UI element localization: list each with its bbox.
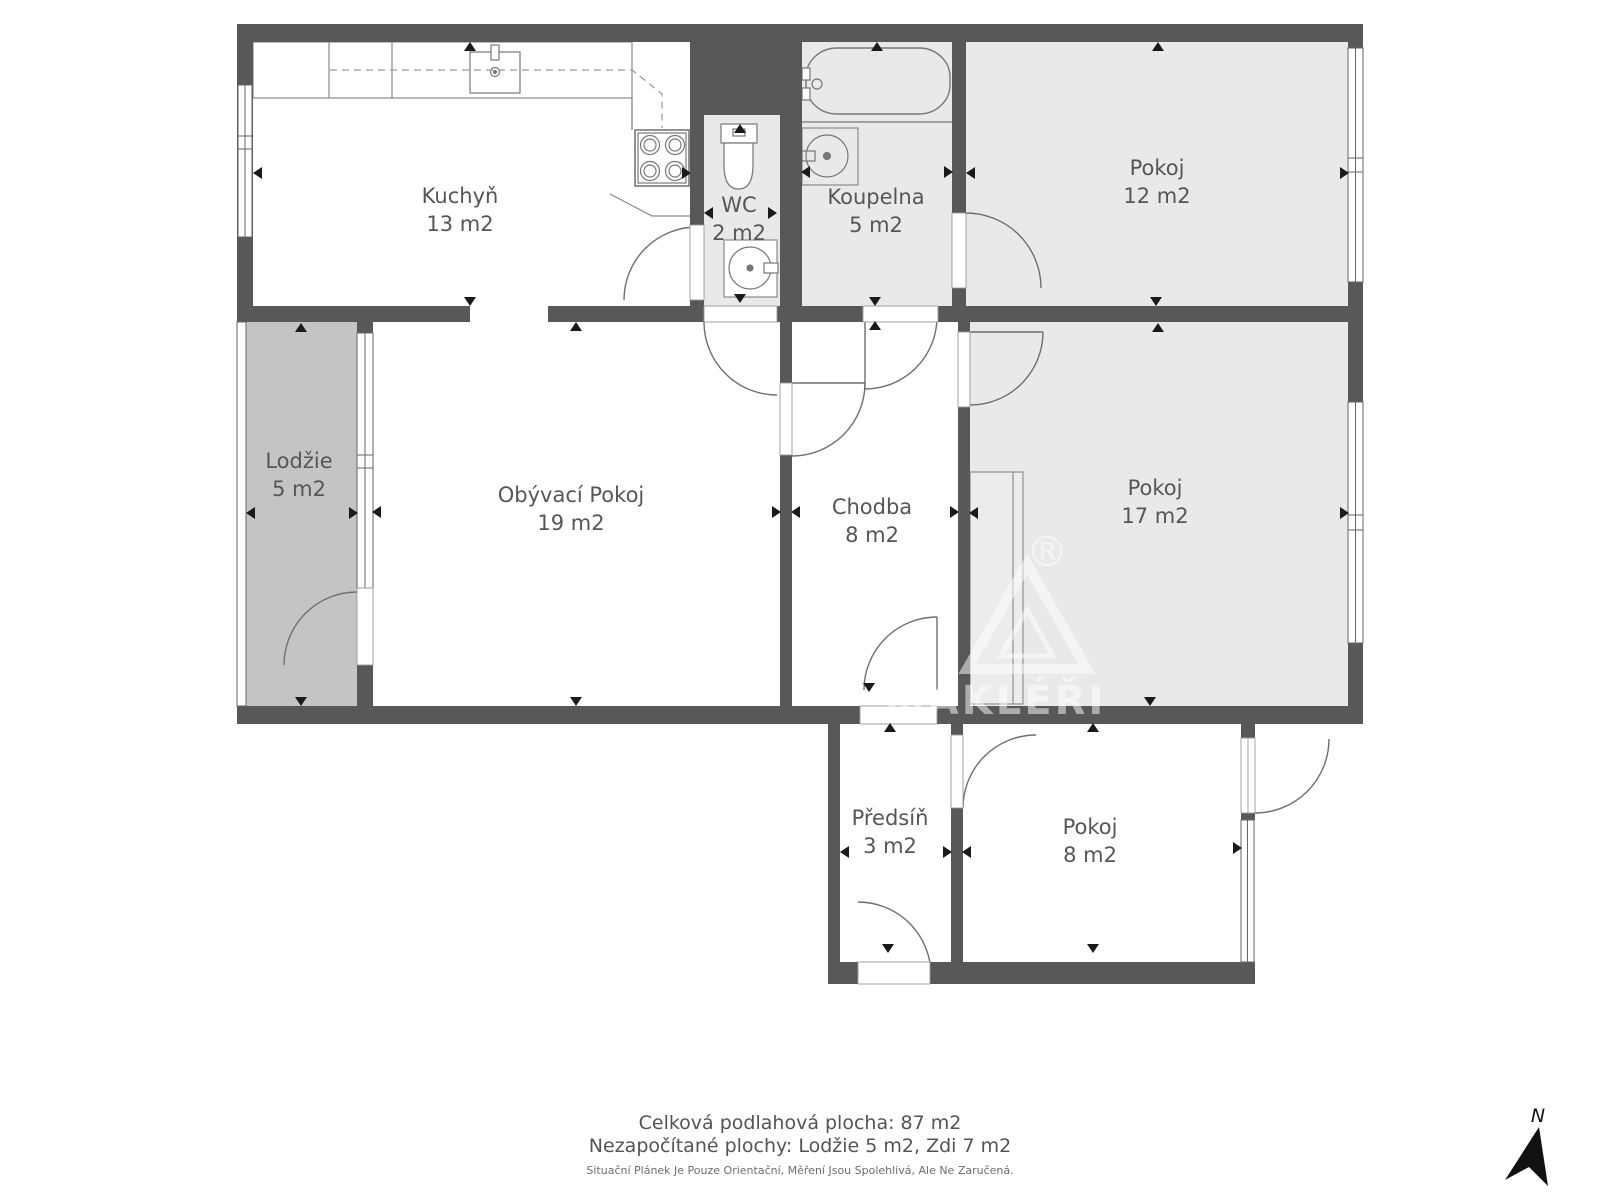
room-lodzie: Lodžie 5 m2 bbox=[265, 447, 332, 503]
door-arc-pokoj-8-balcony bbox=[1255, 739, 1329, 813]
wall-predsin-left bbox=[828, 724, 840, 962]
room-name: Předsíň bbox=[852, 804, 929, 832]
room-pokoj-8: Pokoj 8 m2 bbox=[1063, 813, 1118, 869]
room-area: 8 m2 bbox=[832, 521, 912, 549]
wall-koupelna-pokoj12-a bbox=[952, 42, 966, 213]
kitchen-sink bbox=[470, 45, 520, 93]
wall-lower-a bbox=[237, 706, 860, 724]
window-kuchyn bbox=[238, 85, 252, 237]
plan-summary: Celková podlahová plocha: 87 m2 Nezapočí… bbox=[0, 1112, 1600, 1179]
room-chodba: Chodba 8 m2 bbox=[832, 493, 912, 549]
room-name: Pokoj bbox=[1123, 154, 1190, 182]
room-name: Lodžie bbox=[265, 447, 332, 475]
room-name: Kuchyň bbox=[422, 182, 499, 210]
wall-koupelna-pokoj12-b bbox=[952, 288, 966, 306]
wall-mid-a bbox=[237, 306, 470, 322]
door-leaf-pokoj-12 bbox=[952, 213, 966, 288]
room-kuchyn: Kuchyň 13 m2 bbox=[422, 182, 499, 238]
toilet bbox=[721, 124, 757, 189]
room-name: Pokoj bbox=[1063, 813, 1118, 841]
wall-wc-koupelna bbox=[780, 24, 802, 306]
wall-chodba-pokoj17-a bbox=[958, 322, 970, 332]
room-name: Pokoj bbox=[1121, 474, 1188, 502]
room-obyvaci-pokoj: Obývací Pokoj 19 m2 bbox=[498, 481, 645, 537]
watermark-text: MAKLÉŘI bbox=[885, 676, 1106, 724]
floor-lodzie bbox=[246, 322, 357, 706]
stove bbox=[635, 130, 689, 186]
door-leaf-kuchyn bbox=[690, 225, 704, 300]
room-area: 5 m2 bbox=[827, 211, 924, 239]
door-leaf-entrance bbox=[858, 962, 930, 984]
window-pokoj-17 bbox=[1348, 402, 1363, 643]
watermark-registered-symbol: ® bbox=[1026, 527, 1068, 576]
floor-koupelna bbox=[802, 42, 952, 306]
room-area: 8 m2 bbox=[1063, 841, 1118, 869]
wc-washbasin bbox=[724, 240, 778, 297]
room-area: 17 m2 bbox=[1121, 502, 1188, 530]
wall-pokoj8-right-a bbox=[1241, 724, 1255, 738]
room-area: 5 m2 bbox=[265, 475, 332, 503]
wall-mid-d bbox=[938, 306, 1363, 322]
door-leaf-chodba-pokoj-17 bbox=[958, 332, 970, 407]
wall-pokoj8-right-b bbox=[1241, 813, 1255, 820]
door-leaf-koupelna bbox=[863, 306, 938, 322]
room-pokoj-17: Pokoj 17 m2 bbox=[1121, 474, 1188, 530]
room-koupelna: Koupelna 5 m2 bbox=[827, 183, 924, 239]
room-pokoj-12: Pokoj 12 m2 bbox=[1123, 154, 1190, 210]
door-opening-lodzie bbox=[357, 588, 373, 665]
wall-mid-b bbox=[548, 306, 704, 322]
room-area: 19 m2 bbox=[498, 509, 645, 537]
wall-predsin-pokoj8-a bbox=[951, 724, 963, 735]
wall-bottom-b bbox=[930, 962, 1255, 984]
wall-block-wc bbox=[690, 24, 795, 115]
disclaimer: Situační Plánek Je Pouze Orientační, Měř… bbox=[0, 1163, 1600, 1179]
wall-obyvaci-chodba-b bbox=[780, 455, 792, 706]
room-area: 12 m2 bbox=[1123, 182, 1190, 210]
floorplan-page: ® MAKLÉŘI N Kuchyň 13 m2 WC 2 m2 Koupeln… bbox=[0, 0, 1600, 1200]
window-lodzie bbox=[357, 333, 373, 588]
door-leaf-predsin-pokoj-8 bbox=[951, 735, 963, 808]
wall-kuchyn-wc bbox=[690, 115, 704, 225]
room-name: WC bbox=[712, 191, 766, 219]
room-area: 3 m2 bbox=[852, 832, 929, 860]
floor-plan-drawing: ® MAKLÉŘI N bbox=[0, 0, 1600, 1200]
wall-lodzie-stub-top bbox=[357, 322, 373, 333]
wall-right-outer-b bbox=[1348, 282, 1363, 402]
wall-right-outer-c bbox=[1348, 643, 1363, 706]
door-leaf-obyvaci-chodba bbox=[780, 383, 792, 455]
room-predsin: Předsíň 3 m2 bbox=[852, 804, 929, 860]
excluded-areas: Nezapočítané plochy: Lodžie 5 m2, Zdi 7 … bbox=[0, 1135, 1600, 1158]
window-pokoj-12 bbox=[1348, 48, 1363, 282]
window-pokoj-8 bbox=[1241, 820, 1254, 962]
wall-mid-c bbox=[777, 306, 863, 322]
wall-right-outer-a bbox=[1348, 24, 1363, 48]
room-area: 13 m2 bbox=[422, 210, 499, 238]
total-floor-area: Celková podlahová plocha: 87 m2 bbox=[0, 1112, 1600, 1135]
lodzie-railing bbox=[237, 322, 246, 706]
door-leaf-pokoj-8-balcony bbox=[1241, 738, 1255, 813]
door-leaf-wc bbox=[704, 306, 777, 322]
room-area: 2 m2 bbox=[712, 219, 766, 247]
room-wc: WC 2 m2 bbox=[712, 191, 766, 247]
room-name: Obývací Pokoj bbox=[498, 481, 645, 509]
wall-bottom-a bbox=[828, 962, 858, 984]
wall-predsin-pokoj8-b bbox=[951, 808, 963, 962]
wall-obyvaci-chodba-a bbox=[780, 322, 792, 383]
room-name: Chodba bbox=[832, 493, 912, 521]
room-name: Koupelna bbox=[827, 183, 924, 211]
wall-lodzie-stub-bottom bbox=[357, 665, 373, 706]
